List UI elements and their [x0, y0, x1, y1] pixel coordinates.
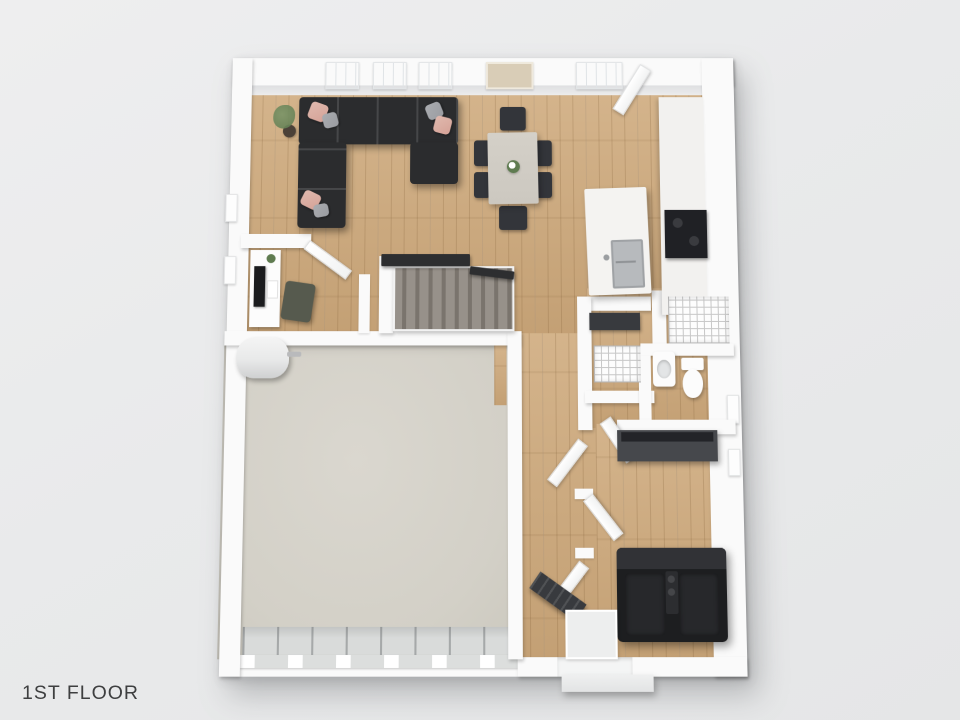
- kitchen-island: [584, 187, 651, 296]
- water-heater-pipe: [287, 352, 301, 357]
- wall-art-frame: [486, 62, 534, 89]
- sink-faucet: [603, 254, 609, 260]
- front-step: [562, 675, 654, 692]
- garage-door-sill: [240, 655, 520, 668]
- dining-chair-top: [500, 107, 526, 131]
- floor-plan: [185, 47, 771, 699]
- sectional-sofa-chaise: [410, 142, 458, 184]
- sofa-seat-left: [625, 573, 665, 635]
- office-chair: [280, 280, 316, 322]
- sofa-backrest: [616, 548, 726, 569]
- window-left-wall-2: [224, 256, 237, 284]
- entry-mat: [565, 610, 618, 660]
- window-left-wall-1: [225, 194, 238, 222]
- office-desk: [249, 250, 281, 327]
- stair-railing: [381, 254, 470, 266]
- hall-wall-stub-2: [575, 548, 594, 559]
- desk-monitor: [253, 266, 265, 307]
- garage-entry-step: [494, 345, 506, 405]
- bathroom-sink: [653, 352, 676, 387]
- sink-basin-divider: [616, 261, 636, 264]
- window-living-2: [373, 62, 407, 89]
- toilet-bowl: [682, 369, 703, 398]
- dining-chair-bottom: [499, 206, 527, 230]
- cupholder: [668, 575, 675, 582]
- island-sink: [611, 239, 646, 289]
- toilet: [679, 358, 708, 401]
- pantry-shelving: [668, 297, 730, 344]
- stove-burner: [673, 218, 683, 228]
- garage-floor: [217, 341, 522, 659]
- reclining-leather-sofa: [616, 548, 728, 642]
- window-living-1: [325, 62, 359, 89]
- window-living-3: [419, 62, 453, 89]
- floor-title-label: 1ST FLOOR: [22, 682, 139, 705]
- outer-wall-top: [232, 58, 733, 85]
- wall-office-top: [241, 234, 312, 248]
- water-heater: [236, 337, 290, 378]
- wall-office-right-stub: [358, 274, 370, 333]
- dining-chair-right-1: [536, 140, 552, 166]
- wall-mudroom-top: [584, 297, 651, 311]
- sink-basin: [657, 360, 672, 379]
- stove-burner: [689, 236, 699, 246]
- wall-stairs-left: [379, 256, 394, 333]
- garage-door-apron: [242, 627, 517, 655]
- flower-centerpiece: [507, 160, 520, 173]
- coat-closet-shelving: [594, 345, 641, 382]
- cupholder: [668, 588, 675, 595]
- range-stove: [664, 210, 707, 258]
- wall-hallway-left: [507, 331, 522, 659]
- sofa-seat-right: [679, 573, 720, 635]
- floor-plan-stage: 1ST FLOOR: [0, 0, 960, 720]
- outer-wall-top-inner-face: [236, 85, 730, 95]
- mudroom-bench: [589, 313, 640, 330]
- desk-paper: [267, 280, 278, 298]
- tv-screen: [621, 432, 713, 441]
- desk-plant: [266, 254, 275, 263]
- tv-console: [617, 430, 718, 461]
- corner-plant: [271, 105, 303, 138]
- window-right-wall-media-2: [728, 449, 741, 476]
- window-kitchen-1: [576, 62, 623, 89]
- kitchen-counter: [659, 97, 708, 315]
- dining-table: [487, 132, 538, 204]
